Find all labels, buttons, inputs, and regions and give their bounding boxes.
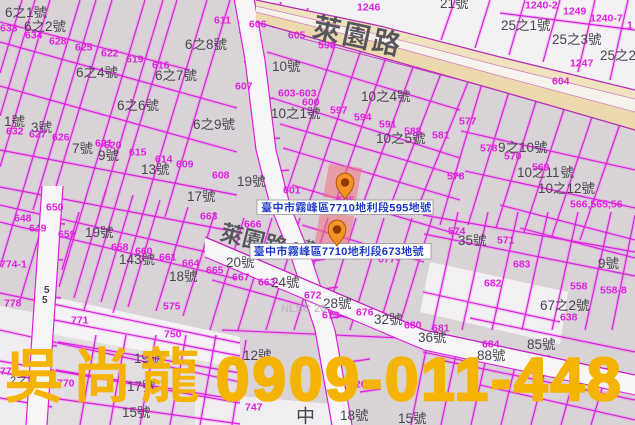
svg-text:1246: 1246 — [357, 2, 381, 14]
svg-text:6: 6 — [5, 5, 13, 20]
svg-text:4: 4 — [97, 65, 105, 80]
svg-text:771: 771 — [71, 315, 89, 327]
svg-text:15: 15 — [122, 405, 137, 420]
svg-text:25: 25 — [600, 48, 615, 63]
svg-text:578: 578 — [447, 171, 465, 183]
svg-text:6: 6 — [117, 98, 125, 113]
svg-text:658: 658 — [111, 242, 129, 254]
svg-text:778: 778 — [4, 298, 22, 310]
svg-text:558: 558 — [570, 281, 588, 293]
svg-text:614: 614 — [155, 154, 173, 166]
svg-text:672: 672 — [304, 290, 322, 302]
svg-text:611: 611 — [214, 15, 231, 27]
svg-text:663: 663 — [200, 211, 218, 223]
svg-text:1240-7: 1240-7 — [590, 13, 623, 25]
svg-text:627: 627 — [29, 129, 47, 141]
svg-text:6: 6 — [138, 98, 146, 113]
svg-text:7710: 7710 — [329, 202, 355, 214]
svg-text:604: 604 — [552, 76, 570, 88]
svg-text:18: 18 — [169, 269, 184, 284]
svg-text:566,565,56: 566,565,56 — [570, 199, 623, 211]
svg-text:626: 626 — [52, 132, 70, 144]
svg-text:10: 10 — [271, 106, 286, 121]
svg-text:1247: 1247 — [570, 58, 594, 70]
svg-text:2: 2 — [629, 48, 635, 63]
svg-text:600: 600 — [302, 97, 320, 109]
svg-text:633: 633 — [0, 23, 18, 35]
svg-text:622: 622 — [101, 48, 119, 60]
svg-text:0909-011-448: 0909-011-448 — [216, 346, 624, 413]
svg-text:625: 625 — [75, 42, 93, 54]
svg-text:12: 12 — [567, 181, 582, 196]
svg-text:774-1: 774-1 — [0, 259, 27, 271]
svg-text:594: 594 — [354, 112, 372, 124]
svg-text:8: 8 — [206, 37, 214, 52]
svg-text:17: 17 — [187, 189, 202, 204]
svg-text:619: 619 — [126, 54, 144, 66]
svg-text:36: 36 — [418, 330, 433, 345]
svg-text:665: 665 — [206, 265, 224, 277]
svg-text:574: 574 — [448, 226, 466, 238]
svg-text:1: 1 — [530, 18, 538, 33]
svg-text:649: 649 — [29, 223, 47, 235]
svg-text:581: 581 — [432, 130, 450, 142]
svg-text:608: 608 — [212, 170, 230, 182]
svg-text:615: 615 — [129, 147, 147, 159]
svg-text:9: 9 — [214, 117, 222, 132]
svg-text:575: 575 — [163, 301, 181, 313]
svg-text:10: 10 — [517, 165, 532, 180]
svg-text:577: 577 — [459, 116, 477, 128]
svg-text:10: 10 — [538, 181, 553, 196]
svg-text:620: 620 — [104, 140, 122, 152]
svg-text:632: 632 — [6, 126, 24, 138]
svg-text:681: 681 — [432, 323, 450, 335]
svg-text:10: 10 — [272, 59, 287, 74]
svg-text:1240-2: 1240-2 — [525, 0, 558, 12]
svg-text:571: 571 — [497, 235, 515, 247]
svg-text:663-: 663- — [258, 277, 280, 289]
svg-text:680: 680 — [404, 320, 422, 332]
svg-text:588: 588 — [404, 126, 422, 138]
svg-text:659: 659 — [58, 229, 76, 241]
svg-text:25: 25 — [501, 18, 516, 33]
svg-text:676: 676 — [356, 307, 374, 319]
svg-text:609: 609 — [176, 159, 194, 171]
svg-text:628: 628 — [49, 36, 67, 48]
svg-text:638: 638 — [560, 312, 578, 324]
svg-text:605: 605 — [288, 30, 306, 42]
svg-text:15: 15 — [398, 411, 413, 425]
svg-text:664: 664 — [182, 258, 200, 270]
svg-text:7710: 7710 — [322, 246, 348, 258]
svg-text:4: 4 — [390, 89, 398, 104]
svg-text:595: 595 — [389, 202, 408, 214]
svg-text:1: 1 — [26, 5, 34, 20]
svg-text:NLSC 20: NLSC 20 — [281, 303, 326, 315]
svg-text:7: 7 — [176, 68, 184, 83]
svg-text:3: 3 — [581, 32, 589, 47]
svg-text:569: 569 — [532, 162, 550, 174]
svg-text:1249: 1249 — [563, 6, 587, 18]
svg-text:578: 578 — [480, 143, 498, 155]
svg-text:21: 21 — [440, 0, 455, 11]
svg-text:634: 634 — [25, 30, 43, 42]
svg-text:682: 682 — [484, 278, 502, 290]
svg-text:673: 673 — [382, 246, 401, 258]
svg-text:570: 570 — [504, 151, 522, 163]
svg-text:6: 6 — [193, 117, 201, 132]
svg-text:9: 9 — [598, 256, 606, 271]
svg-text:13: 13 — [141, 162, 156, 177]
svg-text:19: 19 — [237, 174, 252, 189]
svg-text:17: 17 — [127, 379, 142, 394]
svg-text:5: 5 — [42, 295, 48, 306]
svg-text:20: 20 — [226, 255, 241, 270]
svg-text:19: 19 — [85, 225, 100, 240]
svg-text:558-8: 558-8 — [600, 285, 627, 297]
svg-text:607: 607 — [235, 81, 253, 93]
svg-text:6: 6 — [185, 37, 193, 52]
svg-text:67: 67 — [540, 298, 555, 313]
svg-text:667: 667 — [232, 272, 250, 284]
svg-text:1: 1 — [627, 20, 633, 32]
svg-text:10: 10 — [376, 131, 391, 146]
svg-text:591: 591 — [379, 119, 397, 131]
svg-text:25: 25 — [552, 32, 567, 47]
svg-text:683: 683 — [513, 259, 531, 271]
svg-text:601: 601 — [283, 185, 301, 197]
svg-text:32: 32 — [374, 312, 389, 327]
svg-text:661: 661 — [159, 252, 177, 264]
svg-text:7: 7 — [72, 141, 80, 156]
svg-text:6: 6 — [76, 65, 84, 80]
svg-text:606: 606 — [249, 19, 267, 31]
svg-text:597: 597 — [330, 105, 348, 117]
svg-text:650: 650 — [46, 202, 64, 214]
svg-text:750: 750 — [164, 329, 182, 341]
svg-text:660: 660 — [135, 246, 153, 258]
svg-text:2: 2 — [45, 19, 53, 34]
svg-text:616: 616 — [152, 60, 170, 72]
svg-text:10: 10 — [361, 89, 376, 104]
